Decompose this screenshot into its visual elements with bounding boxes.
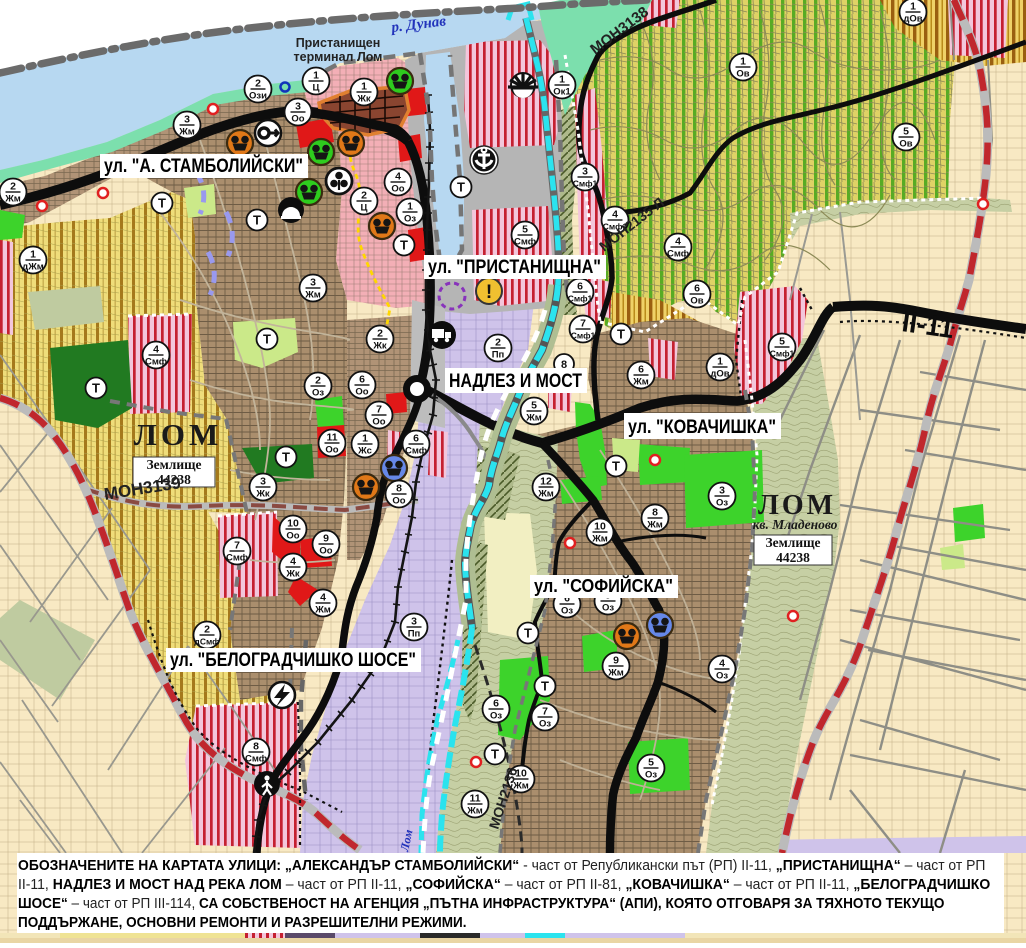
svg-text:6: 6 [413,433,419,445]
svg-text:Смф1: Смф1 [568,294,593,304]
svg-text:5: 5 [648,757,654,769]
svg-text:Жм: Жм [314,605,331,616]
svg-text:Пп: Пп [492,350,505,361]
svg-text:ул. "СОФИЙСКА": ул. "СОФИЙСКА" [534,575,673,596]
svg-text:2: 2 [315,375,321,387]
svg-text:3: 3 [310,277,316,289]
svg-text:4: 4 [612,209,618,221]
svg-text:7: 7 [234,540,240,552]
svg-text:Смф: Смф [405,446,427,457]
svg-text:4: 4 [395,171,401,183]
svg-text:6: 6 [638,364,644,376]
svg-text:3: 3 [411,616,417,628]
svg-text:Ц: Ц [361,203,368,214]
svg-text:!: ! [486,282,492,303]
svg-text:1: 1 [313,70,319,82]
svg-text:7: 7 [376,404,382,416]
svg-text:Ози: Ози [249,91,267,102]
svg-text:Пристанищен: Пристанищен [296,36,381,50]
svg-text:3: 3 [295,101,301,113]
svg-text:Жм: Жм [591,534,608,545]
svg-text:10: 10 [594,521,606,533]
svg-text:Т: Т [158,196,166,211]
svg-text:10: 10 [287,518,299,530]
svg-text:4: 4 [153,344,159,356]
svg-text:Жм: Жм [304,290,321,301]
svg-text:Жм: Жм [178,127,195,138]
svg-text:ул. "ПРИСТАНИЩНА": ул. "ПРИСТАНИЩНА" [428,257,601,278]
svg-text:Жм: Жм [537,489,554,500]
svg-text:Оо: Оо [291,114,304,125]
svg-text:5: 5 [522,224,528,236]
svg-text:дСмф: дСмф [194,637,220,647]
svg-text:Оо: Оо [392,496,405,507]
svg-text:7: 7 [580,318,586,330]
svg-text:6: 6 [493,698,499,710]
svg-text:Землище: Землище [146,457,201,472]
svg-text:8: 8 [253,741,259,753]
svg-text:Смф1: Смф1 [770,349,795,359]
svg-text:5: 5 [903,126,909,138]
svg-text:4: 4 [290,556,296,568]
svg-text:Пп: Пп [408,629,421,640]
svg-text:Оз: Оз [645,770,657,781]
svg-text:6: 6 [694,283,700,295]
svg-text:1: 1 [361,81,367,93]
svg-text:4: 4 [320,592,326,604]
svg-text:Жс: Жс [357,446,372,457]
svg-text:Жм: Жм [466,806,483,817]
svg-text:2: 2 [10,181,16,193]
svg-text:кв. Младеново: кв. Младеново [753,517,838,532]
svg-text:4: 4 [675,236,681,248]
svg-text:12: 12 [540,476,552,488]
svg-text:Жм: Жм [632,377,649,388]
svg-text:Ок1: Ок1 [553,87,571,98]
svg-text:Жм: Жм [525,413,542,424]
svg-text:Оо: Оо [391,184,404,195]
svg-text:Оо: Оо [355,387,368,398]
svg-text:11: 11 [469,793,480,805]
svg-text:терминал Лом: терминал Лом [294,50,383,64]
svg-text:Смф: Смф [226,553,248,564]
svg-text:Жк: Жк [356,94,371,105]
svg-text:44238: 44238 [776,550,810,565]
svg-text:Землище: Землище [765,535,820,550]
svg-text:Ов: Ов [690,296,703,307]
svg-text:1: 1 [407,201,413,213]
svg-text:5: 5 [779,336,785,348]
svg-text:Т: Т [457,180,465,195]
svg-text:3: 3 [260,476,266,488]
svg-text:Оз: Оз [539,719,551,730]
svg-text:8: 8 [396,483,402,495]
svg-text:2: 2 [255,78,261,90]
svg-text:Т: Т [524,626,532,641]
svg-text:Оз: Оз [602,603,614,614]
svg-text:Жк: Жк [255,489,270,500]
svg-text:1: 1 [717,356,723,368]
svg-text:Смф1: Смф1 [571,331,596,341]
svg-text:1: 1 [30,249,36,261]
svg-text:Т: Т [541,679,549,694]
svg-text:2: 2 [204,624,210,636]
svg-text:1: 1 [910,1,916,13]
svg-text:5: 5 [531,400,537,412]
svg-text:3: 3 [582,166,588,178]
svg-text:Жк: Жк [372,341,387,352]
svg-text:Смф: Смф [514,237,536,248]
svg-text:Т: Т [491,747,499,762]
svg-text:Т: Т [263,332,271,347]
svg-text:6: 6 [359,374,365,386]
svg-text:Жм: Жм [4,194,21,205]
svg-text:7: 7 [542,706,548,718]
svg-text:Т: Т [92,381,100,396]
svg-text:Оз: Оз [312,388,324,399]
svg-text:1: 1 [362,433,368,445]
svg-text:дОв: дОв [903,14,922,25]
svg-text:дЖм: дЖм [22,262,44,273]
svg-text:Оо: Оо [319,546,332,557]
svg-text:Смф: Смф [145,357,167,368]
svg-text:ул. "БЕЛОГРАДЧИШКО ШОСЕ": ул. "БЕЛОГРАДЧИШКО ШОСЕ" [170,650,416,671]
svg-text:Оз: Оз [404,214,416,225]
svg-text:9: 9 [323,533,329,545]
svg-text:2: 2 [361,190,367,202]
svg-text:Жм: Жм [646,520,663,531]
svg-text:4: 4 [719,658,725,670]
svg-text:Жк: Жк [285,569,300,580]
svg-text:8: 8 [652,507,658,519]
svg-text:НАДЛЕЗ И МОСТ: НАДЛЕЗ И МОСТ [449,371,582,392]
svg-text:2: 2 [377,328,383,340]
svg-text:6: 6 [577,281,583,293]
svg-text:ЛОМ: ЛОМ [134,417,222,452]
svg-text:3: 3 [719,485,725,497]
svg-text:Жм: Жм [607,668,624,679]
svg-text:Т: Т [617,327,625,342]
svg-text:Ц: Ц [313,83,320,94]
svg-text:Т: Т [400,238,408,253]
svg-text:Оо: Оо [372,417,385,428]
svg-text:Оо: Оо [325,445,338,456]
svg-text:Оз: Оз [490,711,502,722]
svg-text:Ов: Ов [899,139,912,150]
svg-text:2: 2 [495,337,501,349]
svg-text:1: 1 [740,56,746,68]
svg-text:1: 1 [559,74,565,86]
svg-text:Оз: Оз [716,671,728,682]
svg-text:ул. "КОВАЧИШКА": ул. "КОВАЧИШКА" [628,417,776,438]
svg-text:дОв: дОв [710,369,729,380]
svg-text:Оз: Оз [716,498,728,509]
svg-text:Оз: Оз [561,606,573,617]
svg-text:Т: Т [282,450,290,465]
svg-text:Смф: Смф [667,249,689,260]
svg-text:Оо: Оо [286,531,299,542]
svg-text:Ов: Ов [736,69,749,80]
svg-text:Т: Т [253,213,261,228]
svg-text:11: 11 [326,432,337,444]
svg-text:ул. "А. СТАМБОЛИЙСКИ": ул. "А. СТАМБОЛИЙСКИ" [104,155,303,177]
svg-text:Т: Т [612,459,620,474]
svg-text:Смф1: Смф1 [573,179,598,189]
svg-text:3: 3 [184,114,190,126]
svg-text:Смф: Смф [245,754,267,765]
svg-text:9: 9 [613,655,619,667]
